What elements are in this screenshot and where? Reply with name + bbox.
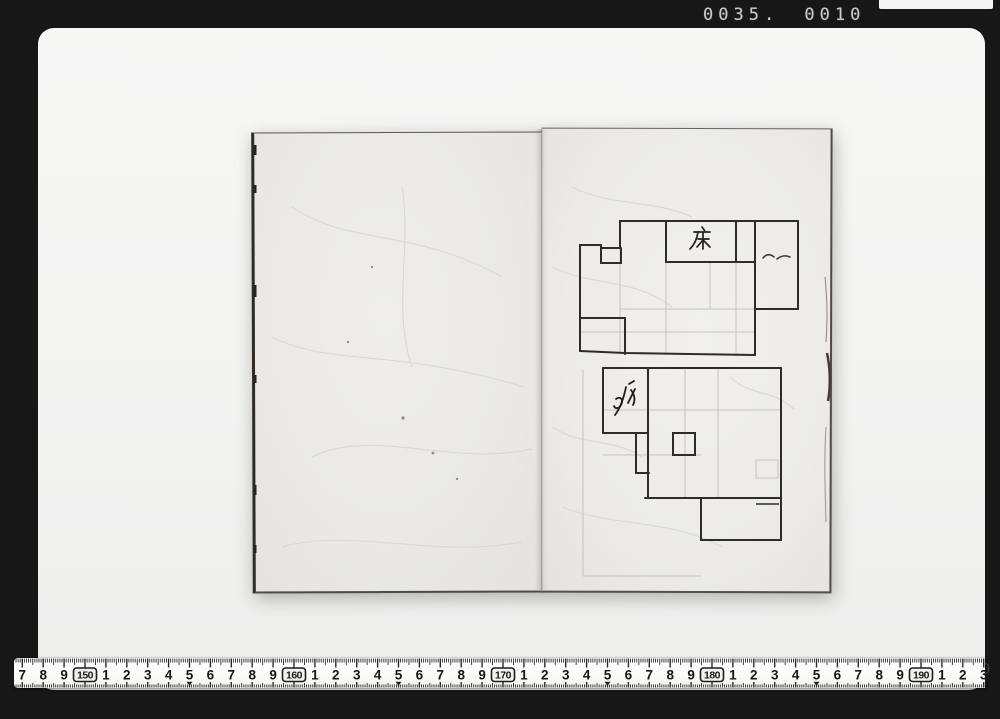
ruler-scale: 7891501234567891601234567891701234567891… [14, 658, 985, 688]
fore-edge-marks [825, 277, 830, 522]
svg-text:2: 2 [541, 668, 549, 683]
svg-text:9: 9 [687, 668, 695, 683]
svg-text:9: 9 [478, 668, 486, 683]
svg-text:4: 4 [374, 668, 382, 683]
pencil-guidelines [583, 368, 781, 576]
svg-text:1: 1 [520, 668, 528, 683]
svg-text:4: 4 [165, 668, 173, 683]
document-book-spread [252, 127, 832, 595]
tilde-marks [763, 255, 790, 259]
upper-floor-plan [580, 221, 798, 355]
svg-text:5: 5 [813, 668, 821, 683]
svg-text:8: 8 [457, 668, 465, 683]
svg-text:1: 1 [311, 668, 319, 683]
svg-text:3: 3 [771, 668, 779, 683]
svg-text:7: 7 [19, 668, 27, 683]
svg-text:5: 5 [186, 668, 194, 683]
svg-text:6: 6 [834, 668, 842, 683]
svg-text:7: 7 [437, 668, 445, 683]
svg-text:2: 2 [750, 668, 758, 683]
svg-text:4: 4 [583, 668, 591, 683]
photograph-area: 98002619 [38, 28, 985, 690]
svg-text:1: 1 [938, 668, 946, 683]
svg-text:1: 1 [102, 668, 110, 683]
svg-text:3: 3 [353, 668, 361, 683]
svg-text:9: 9 [60, 668, 68, 683]
svg-text:1: 1 [729, 668, 737, 683]
svg-text:2: 2 [332, 668, 340, 683]
kanji-annotation-upper [690, 227, 710, 249]
svg-text:5: 5 [604, 668, 612, 683]
svg-text:5: 5 [395, 668, 403, 683]
ink-walls [580, 221, 798, 355]
svg-text:2: 2 [123, 668, 131, 683]
svg-text:8: 8 [875, 668, 883, 683]
svg-text:6: 6 [207, 668, 215, 683]
svg-text:8: 8 [666, 668, 674, 683]
film-edge-tab [879, 0, 993, 9]
frame-counter-display: 0035. 0010 [703, 5, 865, 27]
svg-text:170: 170 [495, 670, 512, 682]
ink-walls [603, 368, 781, 540]
svg-text:150: 150 [77, 670, 94, 682]
svg-text:7: 7 [646, 668, 654, 683]
svg-text:3: 3 [562, 668, 570, 683]
svg-text:9: 9 [269, 668, 277, 683]
svg-text:2: 2 [959, 668, 967, 683]
svg-text:6: 6 [416, 668, 424, 683]
svg-text:7: 7 [228, 668, 236, 683]
svg-text:8: 8 [39, 668, 47, 683]
book-artwork-overlay [252, 127, 832, 595]
archival-photo-frame: 0035. 0010 [0, 0, 1000, 719]
measuring-ruler: 7891501234567891601234567891701234567891… [14, 658, 985, 688]
svg-text:4: 4 [792, 668, 800, 683]
svg-text:160: 160 [286, 670, 303, 682]
svg-text:8: 8 [248, 668, 256, 683]
svg-text:180: 180 [704, 670, 721, 682]
lower-floor-plan [583, 368, 781, 576]
svg-text:190: 190 [913, 670, 930, 682]
svg-text:3: 3 [980, 668, 985, 683]
svg-text:9: 9 [896, 668, 904, 683]
svg-text:6: 6 [625, 668, 633, 683]
svg-text:3: 3 [144, 668, 152, 683]
svg-text:7: 7 [855, 668, 863, 683]
